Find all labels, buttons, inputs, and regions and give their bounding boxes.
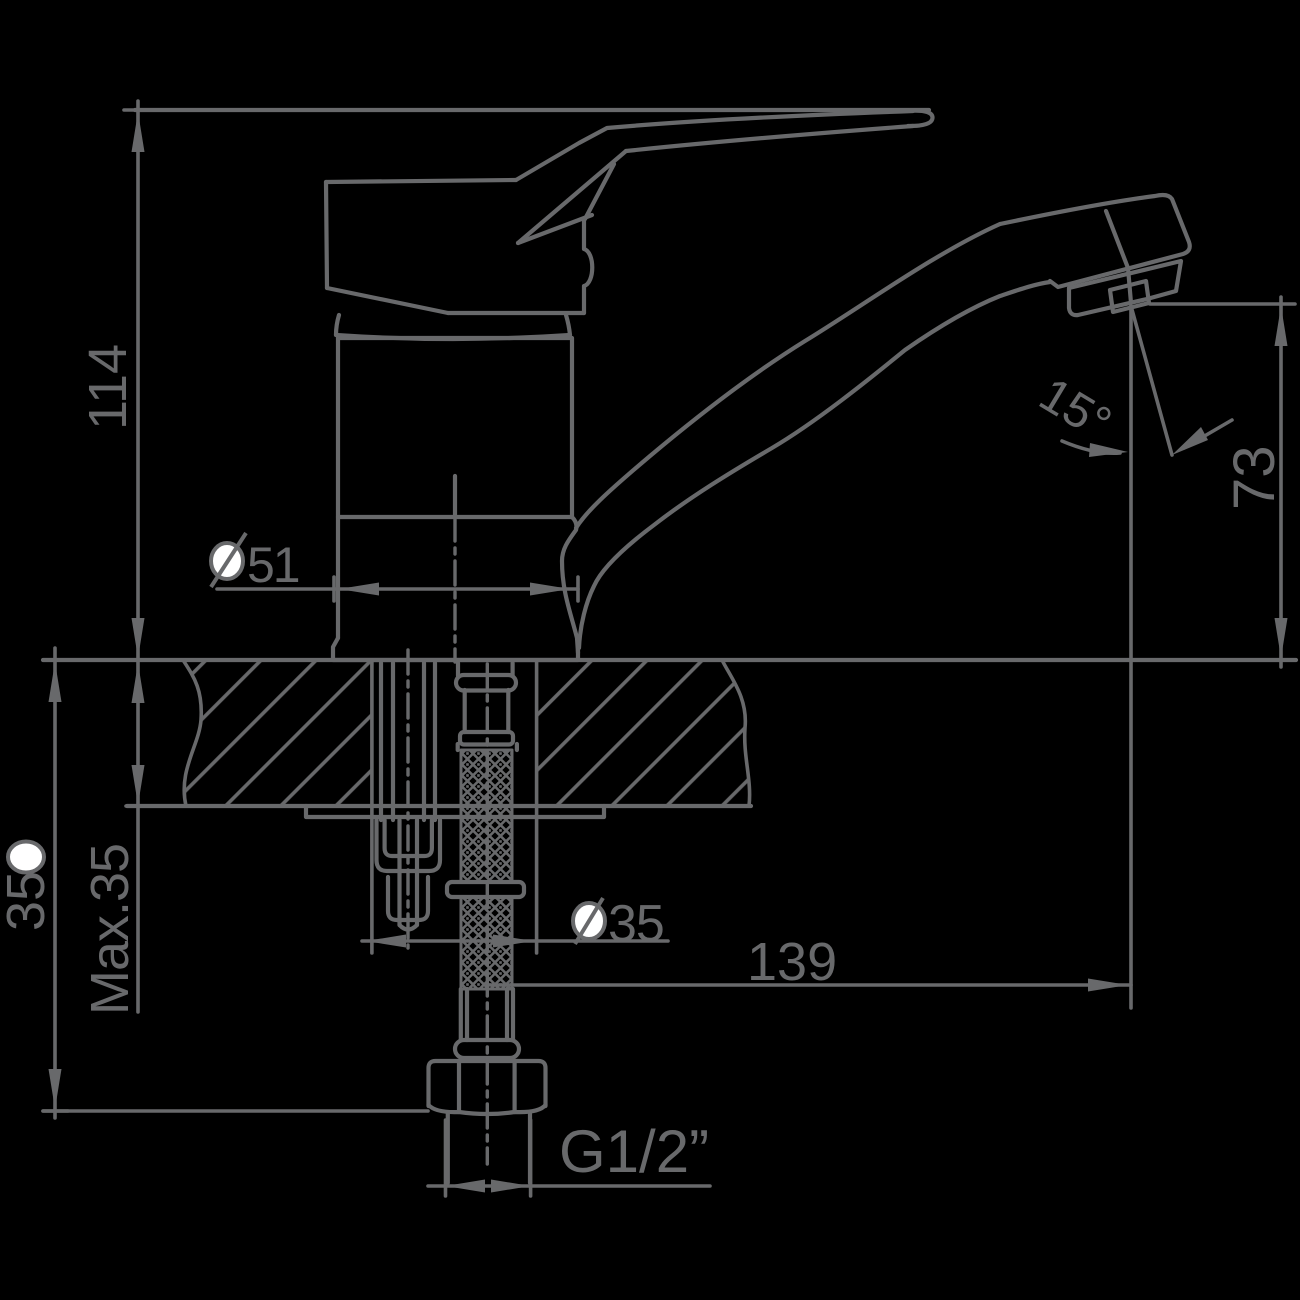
svg-text:Max.35: Max.35 bbox=[80, 844, 140, 1015]
svg-text:139: 139 bbox=[747, 932, 837, 992]
svg-text:G1/2”: G1/2” bbox=[559, 1118, 709, 1185]
svg-text:114: 114 bbox=[78, 344, 138, 430]
svg-text:73: 73 bbox=[1222, 445, 1287, 510]
svg-text:35: 35 bbox=[0, 871, 56, 931]
svg-text:35: 35 bbox=[608, 895, 664, 953]
svg-text:51: 51 bbox=[247, 537, 299, 593]
